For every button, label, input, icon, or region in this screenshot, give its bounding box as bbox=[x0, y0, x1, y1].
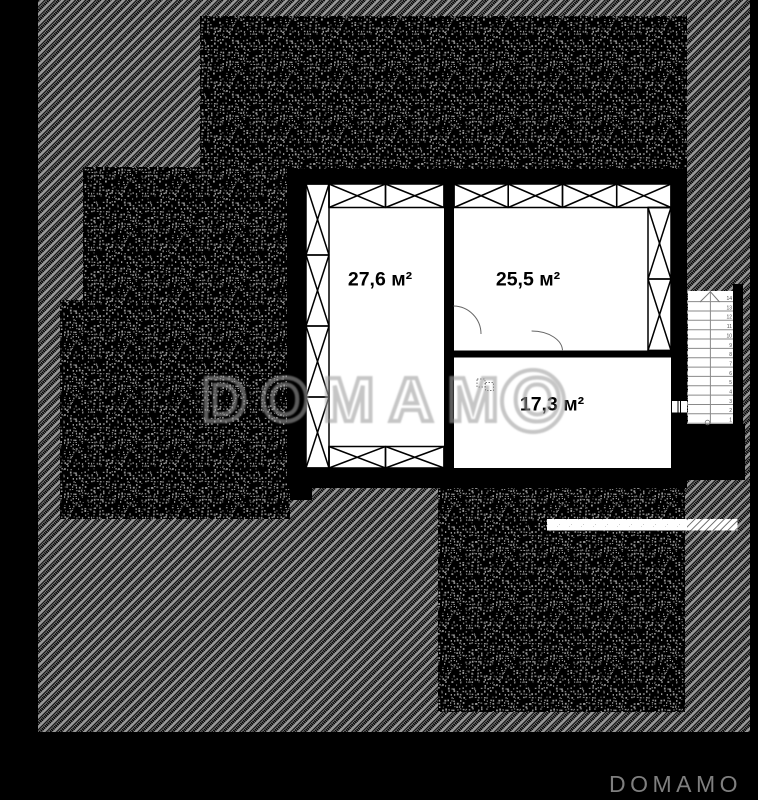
svg-text:14: 14 bbox=[726, 296, 732, 302]
svg-text:10: 10 bbox=[726, 333, 732, 339]
svg-text:1: 1 bbox=[729, 418, 732, 424]
svg-text:13: 13 bbox=[726, 305, 732, 311]
svg-text:7: 7 bbox=[729, 361, 732, 367]
svg-text:8: 8 bbox=[729, 352, 732, 358]
svg-text:DOMAMO: DOMAMO bbox=[202, 366, 575, 435]
svg-text:6: 6 bbox=[729, 371, 732, 377]
svg-text:9: 9 bbox=[729, 343, 732, 349]
svg-text:3: 3 bbox=[729, 399, 732, 405]
svg-text:5: 5 bbox=[729, 380, 732, 386]
svg-text:12: 12 bbox=[726, 315, 732, 321]
svg-text:DOMAMO: DOMAMO bbox=[609, 771, 742, 797]
svg-text:25,5 м²: 25,5 м² bbox=[496, 269, 561, 291]
svg-text:2: 2 bbox=[729, 408, 732, 414]
svg-text:4: 4 bbox=[729, 390, 732, 396]
svg-text:11: 11 bbox=[727, 324, 732, 330]
svg-text:27,6 м²: 27,6 м² bbox=[348, 269, 413, 291]
